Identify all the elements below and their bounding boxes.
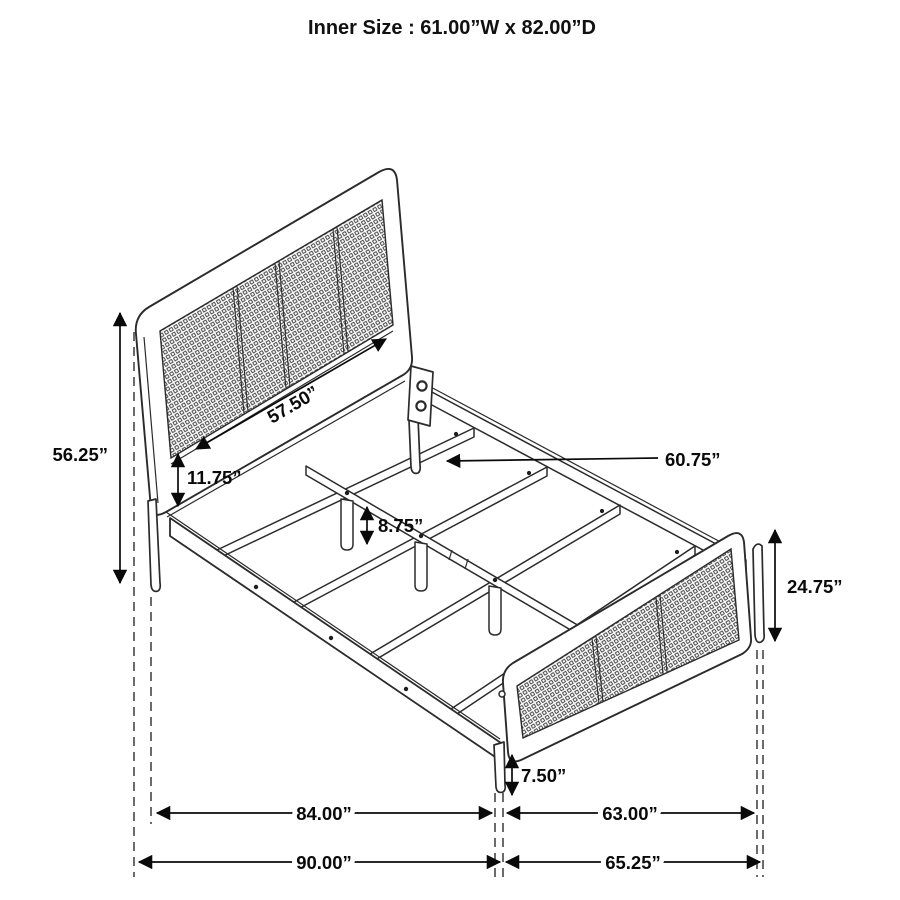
inner-size-title: Inner Size : 61.00”W x 82.00”D: [308, 17, 596, 39]
dim-label-frame-inner-length: 84.00”: [296, 803, 352, 824]
center-rail-bolt: [345, 491, 349, 495]
dim-label-footboard-height: 24.75”: [787, 576, 843, 597]
dim-label-headboard-height: 56.25”: [52, 444, 108, 465]
side-rail-left-lip: [166, 512, 500, 739]
side-rail-right: [430, 391, 746, 573]
slat-bolt: [454, 432, 458, 436]
dimension-diagram-page: 56.25” 11.75” 57.50” 60.75” 8.75” 24.75”…: [0, 0, 900, 900]
slat-bolt: [675, 550, 679, 554]
bed-dimension-diagram: 56.25” 11.75” 57.50” 60.75” 8.75” 24.75”…: [0, 0, 900, 900]
dim-label-overall-width: 65.25”: [605, 852, 661, 873]
dim-label-footboard-leg-height: 7.50”: [521, 765, 566, 786]
dim-label-center-leg-height: 8.75”: [378, 515, 423, 536]
center-leg-1: [341, 499, 353, 550]
footboard-peg: [499, 691, 505, 697]
side-rail-bolt: [329, 636, 333, 640]
bracket-hole: [416, 401, 425, 410]
side-rail-bolt: [254, 585, 258, 589]
headboard-right-leg: [409, 417, 420, 473]
center-leg-2: [415, 542, 427, 591]
footboard-front-leg: [494, 742, 505, 792]
slat-bolt: [527, 471, 531, 475]
bracket-hole: [417, 381, 426, 390]
dim-label-slat-support-rail: 60.75”: [665, 449, 721, 470]
side-rail-bolt: [404, 687, 408, 691]
dim-label-footboard-span: 63.00”: [602, 803, 658, 824]
slat-bolt: [600, 509, 604, 513]
dim-label-headboard-rail-gap: 11.75”: [187, 467, 242, 488]
center-leg-3: [489, 586, 501, 635]
headboard-mounting-bracket: [408, 366, 433, 426]
footboard-rear-leg: [753, 544, 764, 642]
dim-label-overall-length: 90.00”: [296, 852, 352, 873]
center-rail-bolt: [493, 578, 497, 582]
